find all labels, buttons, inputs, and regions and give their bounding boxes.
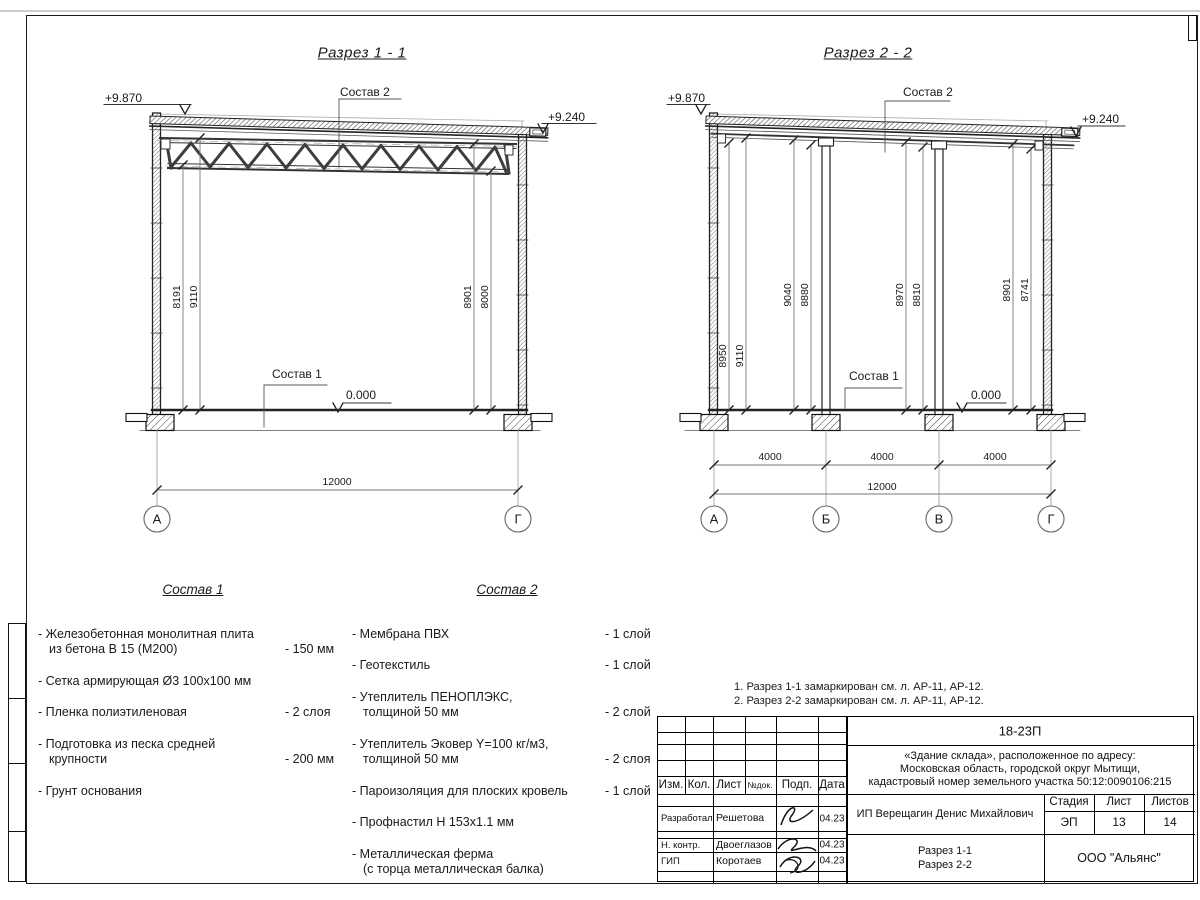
section2-elevation-left: +9.870	[668, 91, 705, 105]
tb-col-ndok: №док.	[748, 780, 773, 790]
section1-dim-8000: 8000	[479, 285, 491, 308]
tb-object-line3: кадастровый номер земельного участка 50:…	[868, 776, 1171, 788]
material-value: - 1 слой	[605, 658, 651, 674]
tb-name-ncontrol: Двоеглазов	[716, 839, 772, 851]
composition-2-title: Состав 2	[352, 582, 662, 598]
material-value: - 2 слой	[605, 705, 651, 721]
tb-grid-line	[658, 744, 846, 745]
list-item: - Геотекстиль - 1 слой	[352, 658, 662, 674]
section2-dim-9110: 9110	[734, 345, 746, 368]
section1-dim-8901: 8901	[462, 285, 474, 308]
list-item: - Мембрана ПВХ - 1 слой	[352, 627, 662, 643]
tb-grid-line	[658, 760, 846, 761]
tb-col-izm: Изм.	[659, 779, 684, 791]
list-item: - Утеплитель ПЕНОПЛЭКС, толщиной 50 мм -…	[352, 690, 662, 721]
tb-grid-line	[658, 776, 846, 777]
tb-grid-line	[1094, 794, 1095, 834]
list-item: - Сетка армирующая Ø3 100х100 мм	[38, 674, 348, 690]
section2-axis-a: А	[710, 512, 719, 527]
section2-axis-g: Г	[1047, 512, 1054, 527]
title-block: Изм. Кол. Лист №док. Подп. Дата Разработ…	[657, 716, 1194, 882]
material-name: - Металлическая ферма (с торца металличе…	[352, 847, 662, 878]
section1-axis-g: Г	[514, 512, 521, 527]
section-1-1-drawing	[104, 99, 596, 532]
composition-1-list: Состав 1 - Железобетонная монолитная пли…	[38, 582, 348, 815]
tb-col-podp: Подп.	[782, 779, 813, 791]
tb-sheet-label: Лист	[1107, 796, 1132, 808]
signature-ncontrol-gip	[774, 833, 820, 881]
section1-roof-composition-label: Состав 2	[340, 85, 390, 99]
tb-name-developer: Решетова	[716, 812, 764, 824]
tb-sheet-name-line2: Разрез 2-2	[918, 859, 972, 871]
material-value: - 2 слоя	[285, 705, 330, 721]
tb-object-line2: Московская область, городской округ Мыти…	[900, 763, 1140, 775]
tb-sheets-value: 14	[1163, 815, 1176, 829]
note-line-2: 2. Разрез 2-2 замаркирован см. л. АР-11,…	[734, 694, 984, 708]
material-name: - Грунт основания	[38, 784, 348, 800]
tb-grid-line	[658, 806, 846, 807]
section2-zero-level: 0.000	[971, 388, 1001, 402]
tb-grid-line	[846, 794, 1195, 795]
section2-dim-8970: 8970	[894, 283, 906, 306]
tb-role-gip: ГИП	[661, 856, 680, 867]
section2-span-bv: 4000	[870, 451, 893, 463]
list-item: - Железобетонная монолитная плита из бет…	[38, 627, 348, 658]
list-item: - Металлическая ферма (с торца металличе…	[352, 847, 662, 878]
material-value: - 150 мм	[285, 642, 334, 658]
tb-grid-line	[745, 717, 746, 794]
tb-role-ncontrol: Н. контр.	[661, 840, 700, 851]
tb-sheet-name-line1: Разрез 1-1	[918, 845, 972, 857]
composition-1-title: Состав 1	[38, 582, 348, 598]
tb-grid-line	[658, 794, 846, 795]
section1-dim-9110: 9110	[188, 286, 200, 309]
section2-dim-8950: 8950	[717, 344, 729, 367]
section2-elevation-right: +9.240	[1082, 112, 1119, 126]
section2-axis-v: В	[935, 512, 944, 527]
list-item: - Пленка полиэтиленовая - 2 слоя	[38, 705, 348, 721]
section1-dim-8191: 8191	[171, 285, 183, 308]
section2-roof-composition-label: Состав 2	[903, 85, 953, 99]
tb-col-data: Дата	[819, 779, 844, 791]
tb-grid-line	[658, 831, 846, 832]
tb-sheet-value: 13	[1112, 815, 1125, 829]
section1-elevation-left: +9.870	[105, 91, 142, 105]
list-item: - Профнастил Н 153х1.1 мм	[352, 815, 662, 831]
section2-dim-8810: 8810	[911, 283, 923, 306]
section2-axis-b: Б	[822, 512, 831, 527]
section1-title: Разрез 1 - 1	[318, 45, 407, 62]
tb-company: ООО "Альянс"	[1077, 851, 1161, 865]
material-value: - 200 мм	[285, 752, 334, 768]
drawing-sheet: Разрез 1 - 1 +9.870 +9.240 Состав 2 Сост…	[0, 0, 1200, 900]
section1-floor-composition-label: Состав 1	[272, 367, 322, 381]
tb-grid-line	[1044, 811, 1195, 812]
material-value: - 1 слой	[605, 784, 651, 800]
list-item: - Утеплитель Эковер Y=100 кг/м3, толщино…	[352, 737, 662, 768]
list-item: - Подготовка из песка средней крупности …	[38, 737, 348, 768]
tb-grid-line	[713, 717, 714, 883]
section1-zero-level: 0.000	[346, 388, 376, 402]
tb-date-gip: 04.23	[819, 856, 844, 867]
section2-title: Разрез 2 - 2	[824, 45, 913, 62]
tb-col-kol: Кол.	[688, 779, 711, 791]
tb-col-list: Лист	[717, 779, 742, 791]
tb-stage-value: ЭП	[1060, 815, 1077, 829]
material-value: - 2 слоя	[605, 752, 650, 768]
section2-dim-9040: 9040	[782, 283, 794, 306]
tb-date-ncontrol: 04.23	[819, 840, 844, 851]
material-name: - Профнастил Н 153х1.1 мм	[352, 815, 662, 831]
tb-grid-line	[846, 834, 1195, 835]
section2-span-vg: 4000	[983, 451, 1006, 463]
tb-grid-line	[846, 717, 848, 883]
tb-sheets-label: Листов	[1151, 796, 1188, 808]
section1-elevation-right: +9.240	[548, 110, 585, 124]
tb-grid-line	[1044, 794, 1045, 883]
tb-stage-label: Стадия	[1049, 796, 1088, 808]
section2-dim-total: 12000	[867, 481, 896, 493]
list-item: - Пароизоляция для плоских кровель - 1 с…	[352, 784, 662, 800]
tb-doc-number: 18-23П	[999, 724, 1042, 739]
section2-floor-composition-label: Состав 1	[849, 369, 899, 383]
section2-span-ab: 4000	[758, 451, 781, 463]
material-name: - Сетка армирующая Ø3 100х100 мм	[38, 674, 348, 690]
note-line-1: 1. Разрез 1-1 замаркирован см. л. АР-11,…	[734, 680, 984, 694]
tb-client: ИП Верещагин Денис Михайлович	[857, 808, 1034, 820]
composition-2-list: Состав 2 - Мембрана ПВХ - 1 слой - Геоте…	[352, 582, 662, 894]
tb-grid-line	[685, 717, 686, 794]
material-value: - 1 слой	[605, 627, 651, 643]
section2-dim-8741: 8741	[1019, 278, 1031, 301]
section1-axis-a: А	[153, 512, 162, 527]
section-2-2-drawing	[667, 101, 1125, 532]
tb-grid-line	[846, 745, 1195, 746]
tb-grid-line	[658, 732, 846, 733]
signature-developer	[778, 801, 816, 833]
tb-role-developer: Разработал	[661, 813, 713, 824]
section2-dim-8880: 8880	[799, 283, 811, 306]
tb-object-line1: «Здание склада», расположенное по адресу…	[904, 750, 1135, 762]
section1-dim-total: 12000	[322, 476, 351, 488]
tb-grid-line	[1144, 794, 1145, 834]
section2-dim-8901: 8901	[1001, 278, 1013, 301]
tb-date-developer: 04.23	[819, 814, 844, 825]
tb-name-gip: Коротаев	[716, 855, 761, 867]
list-item: - Грунт основания	[38, 784, 348, 800]
